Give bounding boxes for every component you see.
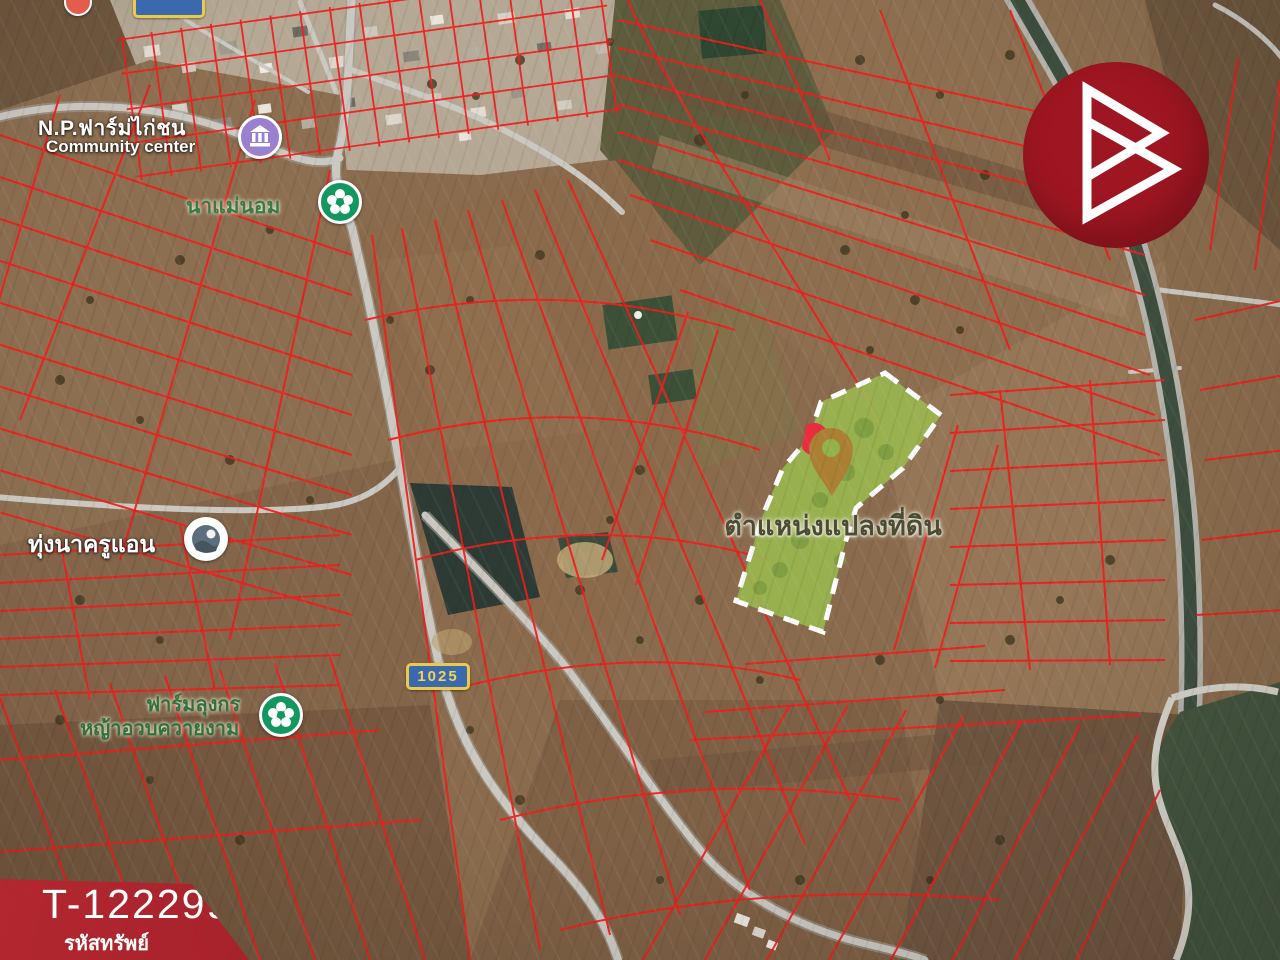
attraction-flower-icon-2 — [259, 693, 303, 737]
photo-spot-icon — [184, 517, 228, 561]
route-badge-1025: 1025 — [406, 663, 470, 690]
brand-logo — [1023, 62, 1209, 248]
photo-glyph — [184, 517, 228, 561]
route-number: 1025 — [417, 668, 458, 685]
route-badge-clipped — [133, 0, 205, 18]
property-code-caption: รหัสทรัพย์ — [64, 927, 149, 959]
community-center-icon — [238, 115, 282, 159]
poi-label-community-category: Community center — [46, 137, 195, 157]
attraction-flower-icon — [318, 180, 362, 224]
flower-glyph — [262, 696, 300, 734]
poi-label-na-mae-nom: นาแม่นอม — [186, 190, 280, 223]
parcel-position-label: ตำแหน่งแปลงที่ดิน — [724, 504, 942, 547]
poi-label-thung-na-khru-aen: ทุ่งนาครูแอน — [28, 527, 155, 563]
building-glyph — [241, 118, 279, 156]
poi-label-farm-lung-korn-subtitle: หญ้าอวบควายงาม — [80, 712, 239, 744]
land-listing-map-image: N.P.ฟาร์ม่ไก่ชน Community center นาแม่นอ… — [0, 0, 1280, 960]
flower-glyph — [321, 183, 359, 221]
brand-logo-glyph — [1023, 62, 1209, 248]
